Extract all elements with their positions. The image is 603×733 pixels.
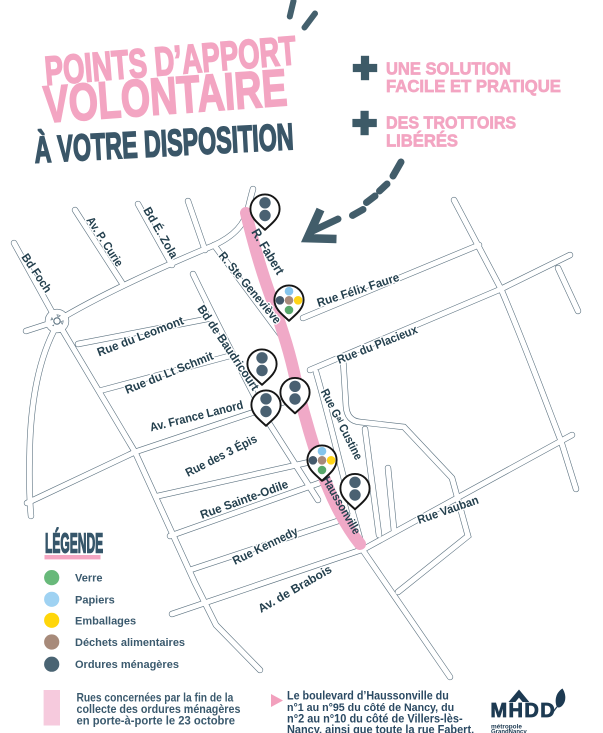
svg-text:Ordures ménagères: Ordures ménagères: [75, 659, 179, 671]
svg-text:LÉGENDE: LÉGENDE: [45, 527, 103, 559]
svg-text:en porte-à-porte le 23 octobre: en porte-à-porte le 23 octobre: [77, 715, 236, 727]
svg-text:GrandNancy: GrandNancy: [491, 730, 527, 733]
svg-text:Déchets alimentaires: Déchets alimentaires: [75, 637, 185, 649]
svg-text:Nancy, ainsi que toute la rue: Nancy, ainsi que toute la rue Fabert.: [287, 724, 474, 733]
svg-text:FACILE ET PRATIQUE: FACILE ET PRATIQUE: [386, 77, 561, 96]
svg-text:Emballages: Emballages: [75, 615, 136, 627]
svg-text:UNE SOLUTION: UNE SOLUTION: [386, 59, 511, 79]
svg-text:Papiers: Papiers: [75, 594, 115, 606]
svg-text:Verre: Verre: [75, 573, 103, 585]
svg-text:LIBÉRÉS: LIBÉRÉS: [386, 131, 458, 150]
svg-text:collecte des ordures ménagères: collecte des ordures ménagères: [77, 703, 241, 715]
svg-text:DES TROTTOIRS: DES TROTTOIRS: [386, 113, 516, 133]
svg-text:MHDD: MHDD: [491, 700, 557, 722]
